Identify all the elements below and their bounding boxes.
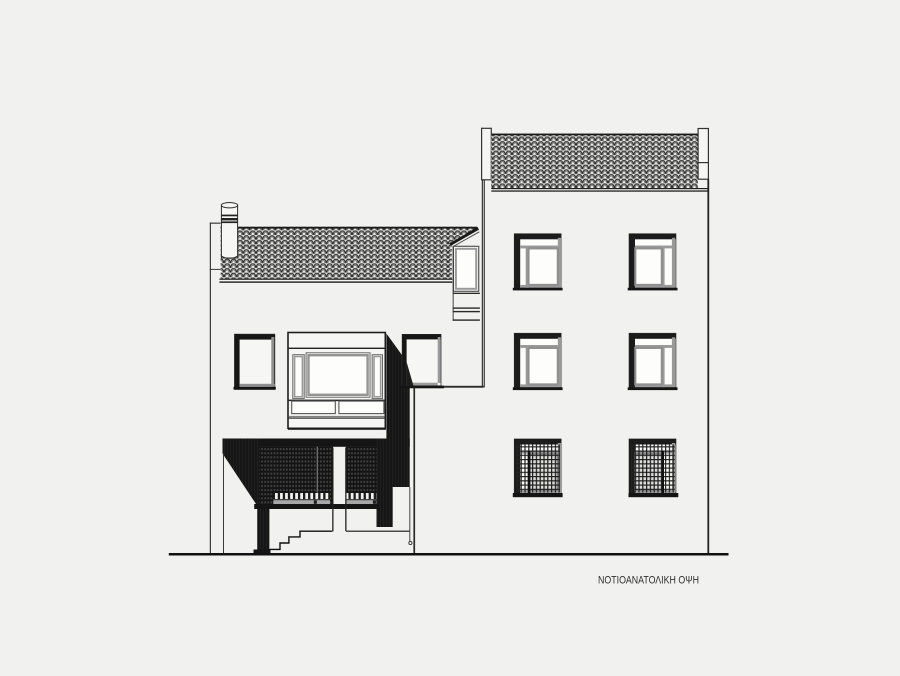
svg-text:ΝΟΤΙΟΑΝΑΤΟΛΙΚΗ ΟΨΗ: ΝΟΤΙΟΑΝΑΤΟΛΙΚΗ ΟΨΗ [598,575,699,587]
